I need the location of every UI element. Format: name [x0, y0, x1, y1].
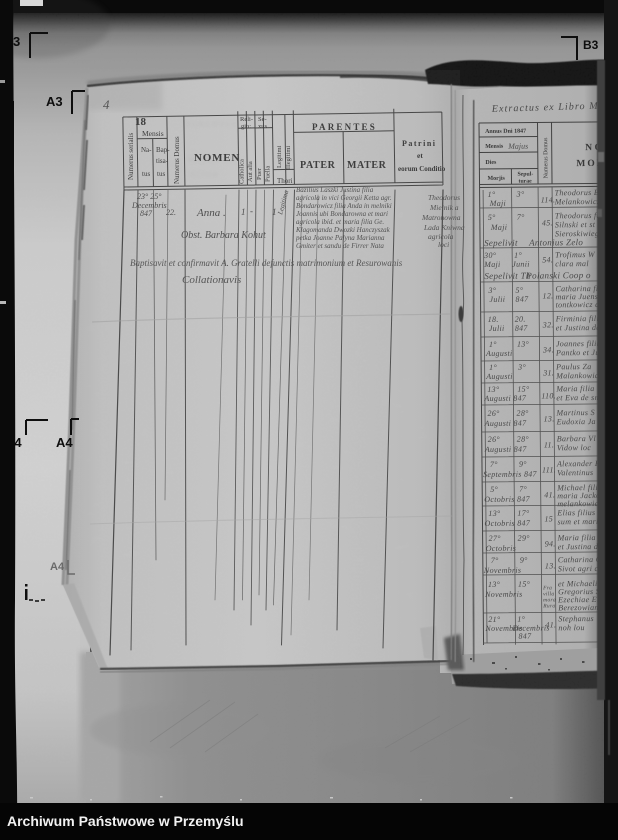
svg-text:A3: A3: [46, 94, 63, 109]
svg-text:A4: A4: [56, 435, 73, 450]
svg-text:Archiwum Państwowe w Przemyślu: Archiwum Państwowe w Przemyślu: [7, 813, 244, 829]
svg-text:A4: A4: [50, 561, 65, 573]
svg-text:3: 3: [13, 34, 20, 49]
svg-text:B3: B3: [583, 38, 599, 52]
